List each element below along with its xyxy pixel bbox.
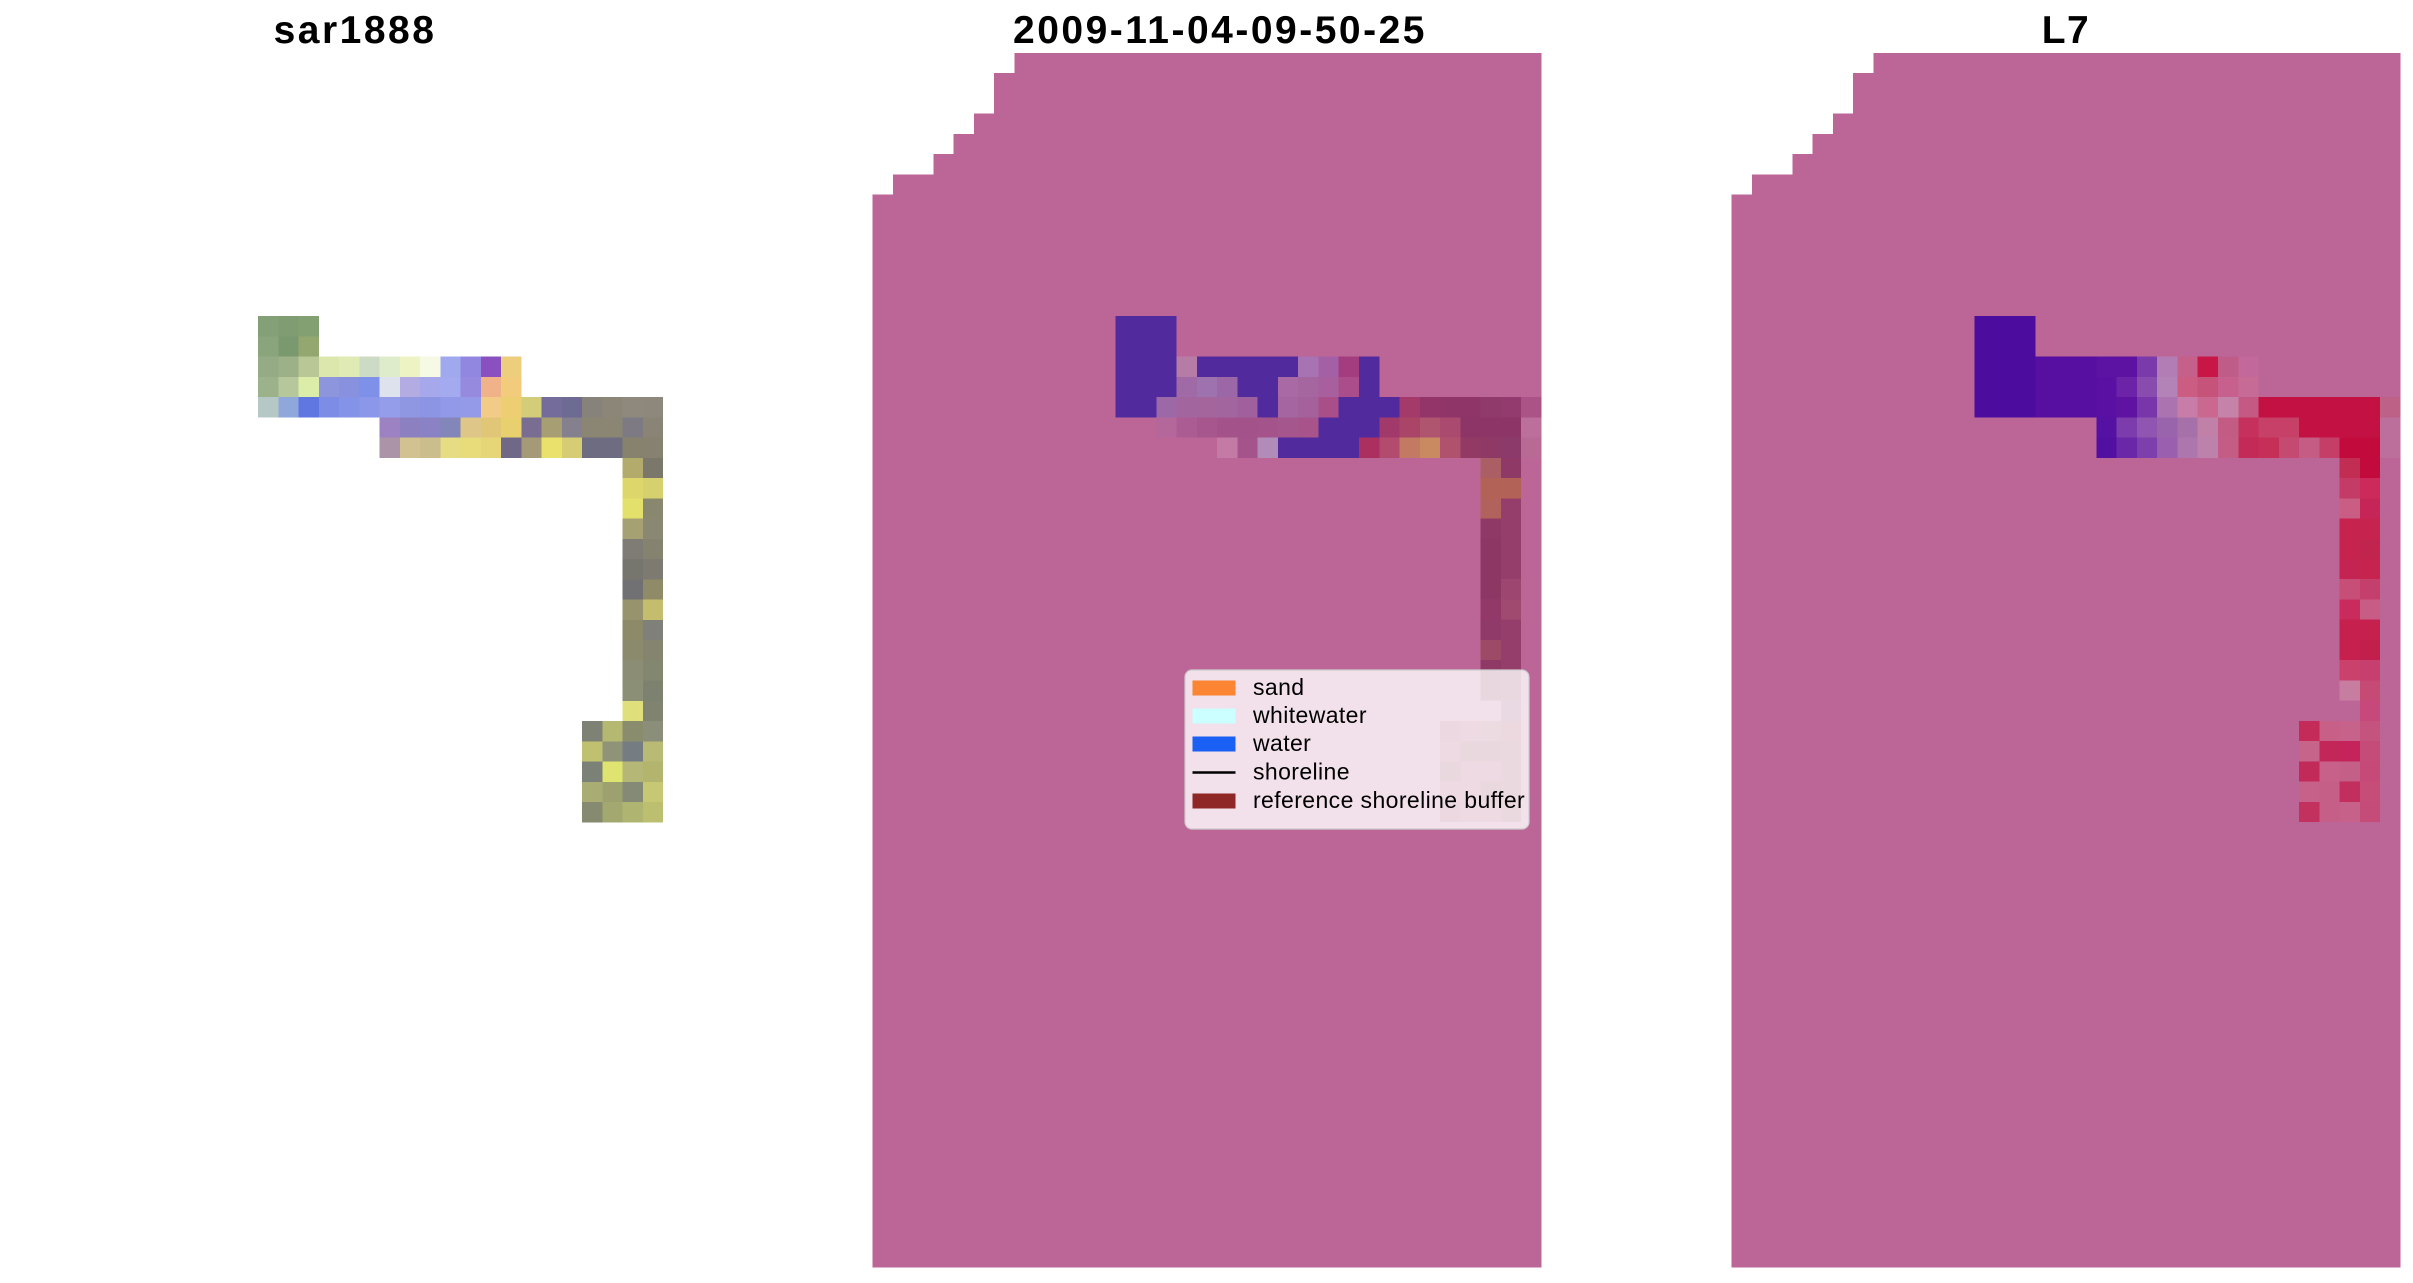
svg-text:reference shoreline buffer: reference shoreline buffer	[1253, 787, 1525, 813]
svg-text:water: water	[1252, 730, 1311, 756]
svg-text:whitewater: whitewater	[1252, 702, 1367, 728]
svg-text:sar1888: sar1888	[274, 9, 437, 52]
svg-text:L7: L7	[2042, 9, 2091, 52]
svg-text:sand: sand	[1253, 674, 1304, 700]
svg-text:shoreline: shoreline	[1253, 759, 1350, 785]
svg-text:2009-11-04-09-50-25: 2009-11-04-09-50-25	[1013, 9, 1427, 52]
